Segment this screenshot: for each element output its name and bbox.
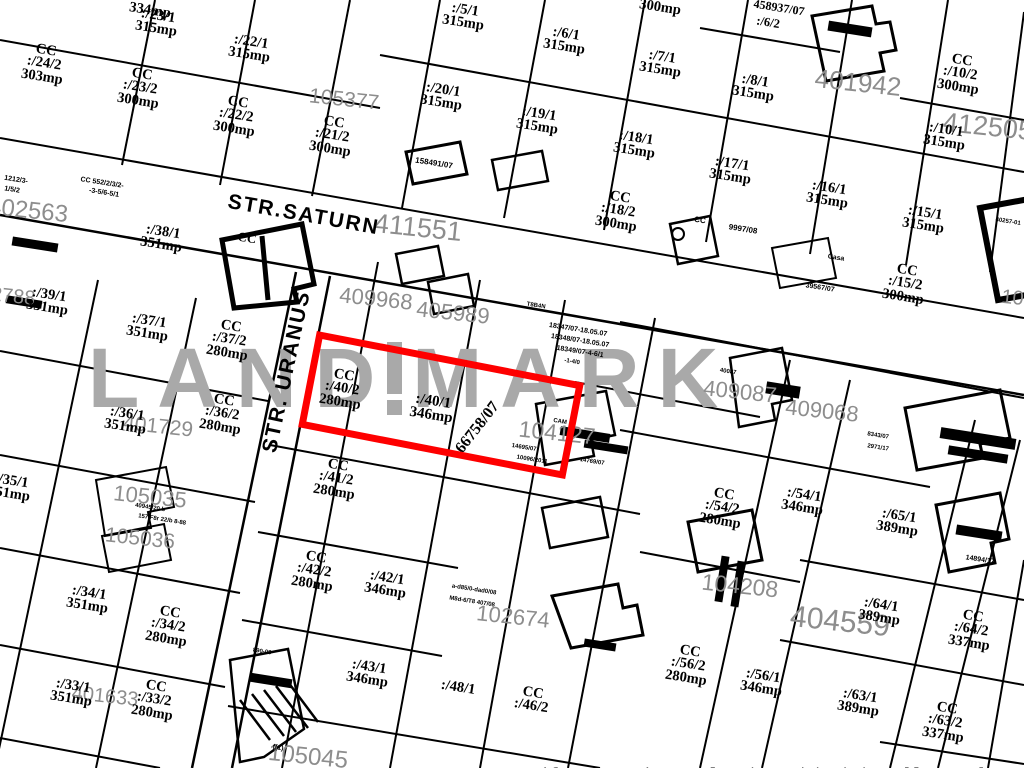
parcel-label: CC :/18/2 300mp [594, 188, 642, 234]
parcel-label: CC :/54/2 280mp [698, 485, 746, 531]
building-annotation-bar [956, 524, 1003, 541]
map-canvas: LAND MARK STR.SATURN STR. URANUS Specify… [0, 0, 1024, 768]
building-outline [396, 246, 444, 284]
parcel-label: CC :/41/2 280mp [312, 456, 360, 502]
parcel-boundary [470, 482, 640, 514]
building-outline [772, 238, 836, 288]
parcel-label: CC :/22/2 300mp [212, 93, 260, 139]
parcel-label: CC :/33/2 280mp [130, 677, 178, 723]
parcel-label: CC :/21/2 300mp [308, 113, 356, 159]
parcel-boundary [380, 55, 1024, 172]
parcel-boundary [242, 620, 442, 656]
building-outline [980, 197, 1024, 300]
building-annotation-bar [948, 445, 1009, 463]
parcel-label: CC :/36/2 280mp [198, 391, 246, 437]
parcel-label: CC :/10/2 300mp [936, 51, 984, 97]
parcel-boundary [0, 645, 225, 687]
building-annotation-bar [827, 21, 872, 38]
parcel-label: CC :/24/2 303mp [20, 41, 68, 87]
annotation-label: f(1) [272, 744, 284, 753]
building-annotation-bar [12, 236, 59, 252]
parcel-label: CC :/64/2 337mp [947, 607, 995, 653]
parcel-label: CC :/23/2 300mp [116, 65, 164, 111]
cadastral-id: 105 [1000, 286, 1024, 312]
parcel-label: CC :/56/2 280mp [664, 642, 712, 688]
parcel-boundary [264, 690, 296, 732]
parcel-label: CC :/34/2 280mp [144, 603, 192, 649]
command-line-1: Specify next point or [Arc/Length/Undo/T… [503, 761, 1005, 768]
command-prompt[interactable]: Specify next point or [Arc/Length/Undo/T… [503, 703, 1005, 768]
parcel-boundary [0, 738, 160, 768]
parcel-boundary [258, 532, 458, 568]
parcel-boundary [220, 0, 255, 185]
parcel-label: CC :/42/2 280mp [290, 548, 338, 594]
utility-symbol-icon [672, 228, 684, 240]
building-outline [492, 151, 548, 190]
building-outline [542, 497, 608, 548]
building-outline [262, 236, 268, 300]
parcel-label: CC [237, 231, 257, 246]
parcel-boundary [240, 700, 270, 740]
parcel-label: CC :/15/2 300mp [881, 261, 929, 307]
building-annotation-bar [250, 673, 293, 688]
parcel-label: CC :/37/2 280mp [205, 317, 253, 363]
parcel-label: :/35/1 351mp [0, 472, 33, 505]
annotation-label: CC [694, 215, 707, 226]
parcel-boundary [800, 560, 1024, 600]
